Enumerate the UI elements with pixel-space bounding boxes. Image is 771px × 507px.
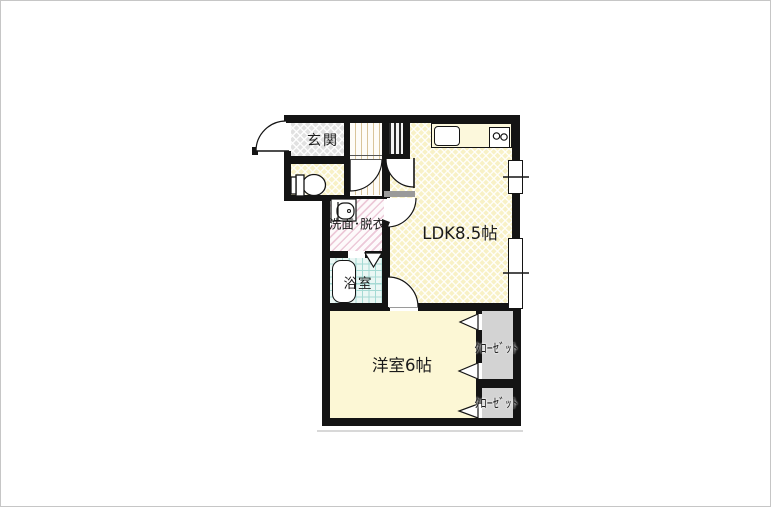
wall [382,223,390,311]
wall [284,195,348,201]
closet-divider-wall [476,379,521,388]
wall-shadow [317,430,523,432]
toilet-floor [291,164,344,195]
window [508,160,523,194]
shoe-cabinet-stripes [389,123,403,154]
wall [322,303,388,311]
wall [418,303,520,311]
closet-lower-label: ｸﾛｰｾﾞｯﾄ [474,393,518,412]
door-threshold [389,304,418,308]
entrance-door-jamb [252,147,258,155]
wall [512,193,520,239]
closet-upper-label: ｸﾛｰｾﾞｯﾄ [474,338,518,357]
window [508,238,523,309]
wall [512,115,520,161]
bedroom-label: 洋室6帖 [372,352,432,376]
wall [365,251,390,258]
closet-wall [476,311,482,314]
wall [322,251,348,258]
stove-icon [489,127,510,148]
wall [322,418,521,426]
ldk-label: LDK8.5帖 [422,220,497,244]
bathroom-label: 浴室 [344,272,373,292]
genkan-label: 玄関 [307,130,339,150]
step-threshold [384,191,415,197]
wall [284,115,520,123]
floor-plan: 玄関 洗面･脱衣 浴室 LDK8.5帖 洋室6帖 ｸﾛｰｾﾞｯﾄ ｸﾛｰｾﾞｯﾄ [0,0,771,507]
hallway-floor [350,123,382,195]
kitchen-sink-icon [434,126,460,146]
washroom-label: 洗面･脱衣 [329,214,385,233]
wall [285,156,350,164]
wall [344,123,350,197]
